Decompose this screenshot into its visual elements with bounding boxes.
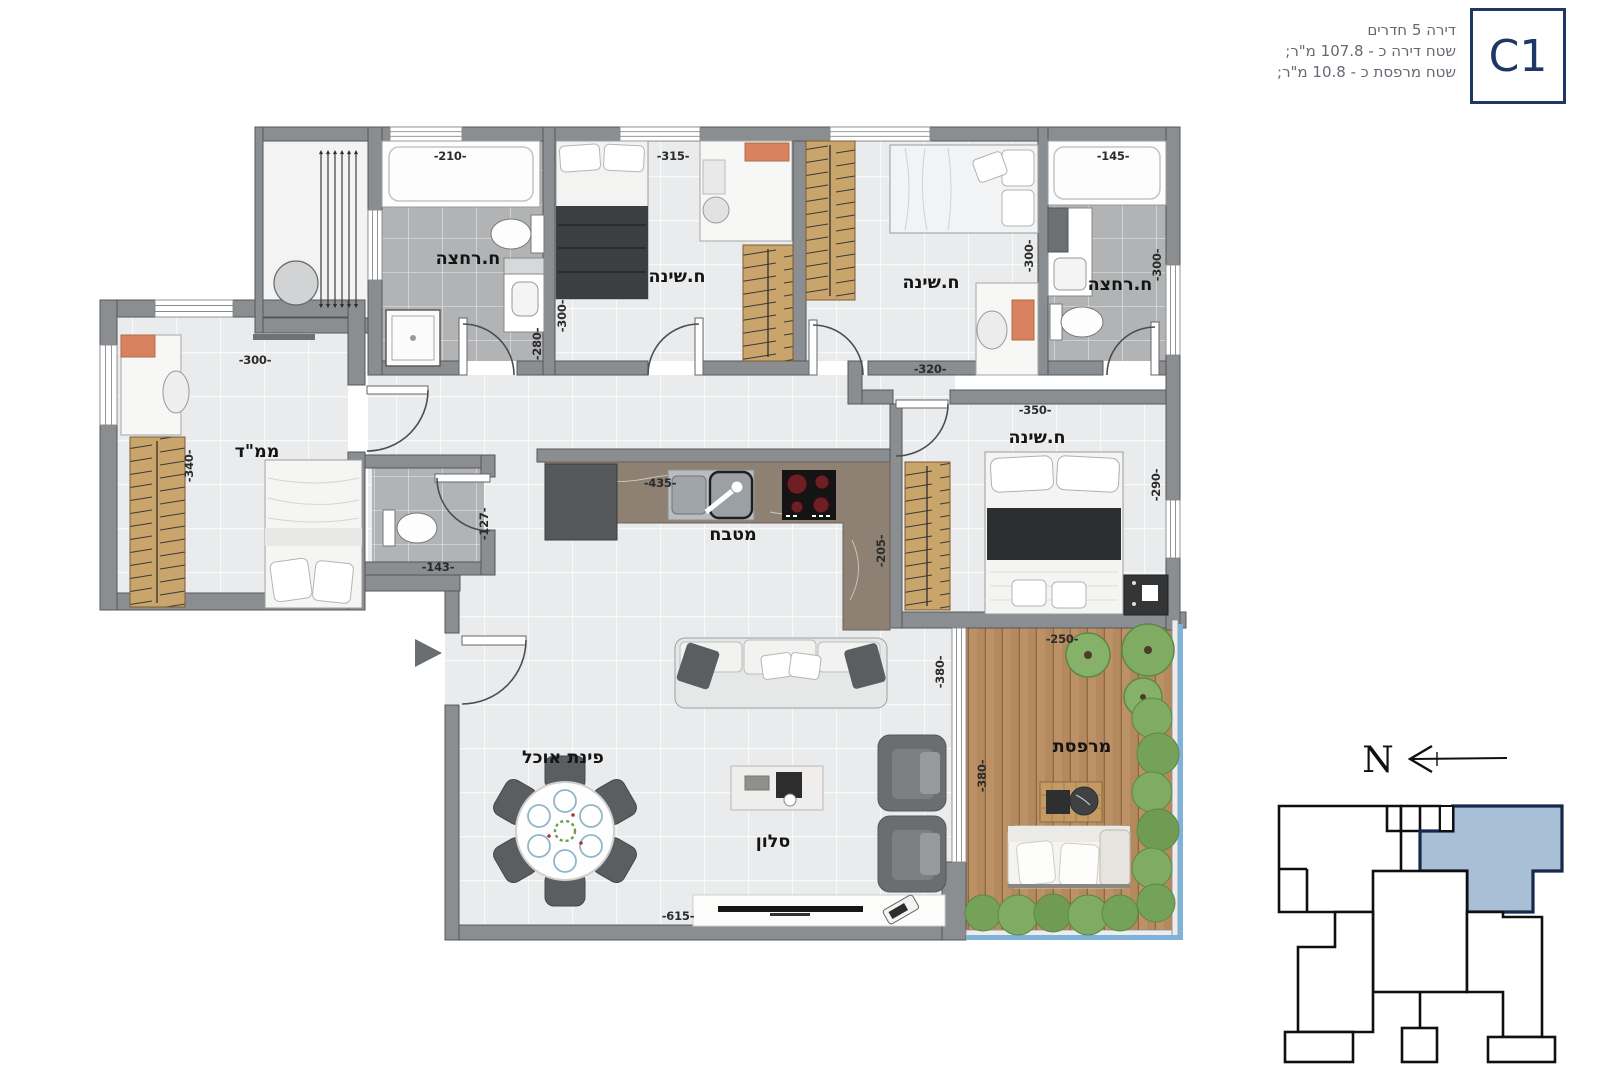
coffee-table-icon: [731, 766, 823, 810]
fridge-icon: [545, 464, 617, 540]
bed-icon: [890, 145, 1038, 233]
apartment-info: דירה 5 חדרים שטח דירה כ - 107.8 מ"ר; שטח…: [1277, 8, 1456, 83]
unit-center: [1373, 871, 1467, 992]
wc-fixtures: [383, 510, 437, 546]
sofa-icon: [675, 638, 887, 708]
room-label-safe-room: ממ"ד: [235, 442, 280, 462]
tv-console-icon: [693, 894, 945, 926]
dim-master-top: -350-: [1019, 403, 1052, 417]
dim-wc-bottom: -143-: [422, 560, 455, 574]
window-service: [368, 210, 382, 280]
window-track: [253, 334, 315, 340]
unit-lower-left: [1298, 912, 1373, 1032]
dim-master-right: -290-: [1149, 468, 1163, 501]
outdoor-sofa-icon: [1008, 826, 1130, 888]
armchair-icon: [878, 735, 946, 811]
bed-icon: [265, 460, 362, 608]
sink-icon: [668, 470, 754, 520]
unit-lower-right: [1467, 912, 1542, 1037]
window-bathroom1: [390, 127, 462, 141]
dim-mamad-top: -300-: [239, 353, 272, 367]
room-label-bathroom2: ח.רחצה: [1088, 275, 1153, 295]
armchair-icon: [878, 816, 946, 892]
hedge-bottom-icon: [965, 894, 1138, 935]
room-label-kitchen: מטבח: [709, 525, 756, 545]
dim-mamad-left: -340-: [182, 449, 196, 482]
desk-icon: [976, 283, 1038, 375]
wardrobe-icon: [743, 245, 793, 361]
wardrobe-icon: [130, 437, 185, 607]
key-plan: N: [1240, 700, 1580, 1067]
storage-unit-icon: [700, 141, 792, 241]
dim-kitchen-side: -205-: [874, 534, 888, 567]
dim-kitchen-top: -435-: [644, 476, 677, 490]
dim-living-right: -380-: [933, 655, 947, 688]
unit-badge: C1: [1470, 8, 1566, 104]
dim-bed1-left: -300-: [555, 299, 569, 332]
dim-bath2-right: -300-: [1150, 248, 1164, 281]
stove-icon: [782, 470, 836, 520]
cabinet-icon: [121, 335, 189, 435]
room-label-bedroom2: ח.שינה: [902, 273, 959, 293]
floorplan-page: דירה 5 חדרים שטח דירה כ - 107.8 מ"ר; שטח…: [0, 0, 1600, 1067]
shower-icon: [386, 310, 440, 366]
dim-bed1-top: -315-: [657, 149, 690, 163]
bed-icon: [985, 452, 1123, 614]
window-bedroom1: [620, 127, 700, 141]
apartment-area: שטח דירה כ - 107.8 מ"ר;: [1277, 41, 1456, 62]
north-arrow-icon: N: [1362, 740, 1507, 781]
outside-area: [368, 591, 445, 940]
bed-icon: [556, 141, 648, 299]
dim-balcony-top: -250-: [1046, 632, 1079, 646]
window-bathroom2-right: [1166, 265, 1180, 355]
nightstand-icon: [1124, 575, 1168, 615]
wardrobe-icon: [905, 462, 950, 610]
toilet-icon: [383, 510, 437, 546]
north-label: N: [1362, 740, 1394, 781]
window-master-right: [1166, 500, 1180, 558]
outdoor-table-icon: [1040, 782, 1102, 822]
dim-wc-right: -127-: [477, 507, 491, 540]
floor-plan: ח.רחצה ח.שינה ח.שינה ח.רחצה ממ"ד מטבח ח.…: [80, 110, 1200, 970]
room-label-balcony: מרפסת: [1053, 737, 1112, 757]
title-block: דירה 5 חדרים שטח דירה כ - 107.8 מ"ר; שטח…: [1277, 8, 1566, 104]
balcony-sliding-door: [952, 628, 966, 862]
window-safe-room-left: [100, 345, 117, 425]
dim-bed2-right: -300-: [1022, 239, 1036, 272]
dim-hall-280: -280-: [530, 327, 544, 360]
dim-balcony-left: -380-: [975, 759, 989, 792]
dim-bed2-bottom: -320-: [914, 362, 947, 376]
room-label-bedroom1: ח.שינה: [648, 267, 705, 287]
dim-living-bottom: -615-: [662, 909, 695, 923]
window-safe-room-top: [155, 300, 233, 317]
vanity-sink-icon: [1048, 208, 1092, 296]
dim-bath1-top: -210-: [434, 149, 467, 163]
room-label-master-bedroom: ח.שינה: [1008, 428, 1065, 448]
room-label-bathroom1: ח.רחצה: [436, 249, 501, 269]
dim-bath2-top: -145-: [1097, 149, 1130, 163]
room-label-living: סלון: [756, 832, 791, 852]
balcony-area: שטח מרפסת כ - 10.8 מ"ר;: [1277, 62, 1456, 83]
vanity-sink-icon: [504, 258, 544, 332]
wardrobe-icon: [806, 141, 855, 300]
boiler-icon: [274, 261, 318, 305]
window-bedroom2: [830, 127, 930, 141]
building-outline: [1279, 806, 1562, 1062]
room-label-dining: פינת אוכל: [522, 748, 604, 768]
apartment-type: דירה 5 חדרים: [1277, 20, 1456, 41]
